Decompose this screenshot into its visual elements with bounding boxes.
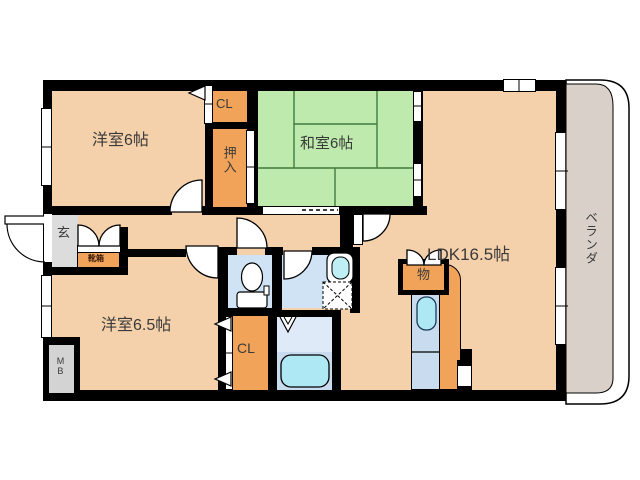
toilet-door <box>237 218 267 248</box>
storage-label-small-storage: 物 <box>417 268 430 282</box>
storage-door-left <box>407 250 424 265</box>
room-label-veranda: ベランダ <box>583 211 596 273</box>
washroom-door <box>284 251 312 279</box>
toilet-flush <box>264 286 269 295</box>
storage-label-closet-top: CL <box>216 97 233 111</box>
storage-label-shoe-cabinet: 靴箱 <box>88 255 104 263</box>
storage-label-oshiire: 押入 <box>222 146 236 196</box>
floor-plan: 洋室6帖 和室6帖 LDK16.5帖 洋室6.5帖 ベランダ 玄 CL 押入 C… <box>0 0 640 480</box>
toilet-bowl <box>242 263 263 291</box>
western6-door <box>170 180 202 212</box>
washing-machine-pan <box>323 282 352 309</box>
storage-label-meter-box: MB <box>55 356 64 388</box>
door-swings <box>78 180 441 279</box>
room-label-western65: 洋室6.5帖 <box>101 318 171 335</box>
ldk-door <box>363 214 390 241</box>
room-label-entrance: 玄 <box>57 226 70 240</box>
storage-label-closet-bottom: CL <box>237 341 255 356</box>
closet-bottom-arrow-1 <box>215 317 231 331</box>
western65-door <box>186 246 218 278</box>
front-door-leaf <box>5 216 45 224</box>
entrance-double-door-right <box>99 225 120 246</box>
room-label-japanese6: 和室6帖 <box>300 136 353 152</box>
bathtub <box>281 355 329 387</box>
sliding-arrows <box>189 86 231 386</box>
kitchen-sink <box>417 297 436 330</box>
window-ticks <box>41 79 568 353</box>
front-door-opening <box>44 214 52 262</box>
toilet-tank <box>237 292 267 308</box>
closet-top-arrow <box>189 86 205 100</box>
floorplan-graphics <box>0 0 640 480</box>
front-door-swing-arc <box>7 224 45 262</box>
washbasin-bowl <box>332 257 349 279</box>
room-label-ldk: LDK16.5帖 <box>427 246 510 264</box>
closet-bottom-arrow-2 <box>215 372 231 386</box>
room-label-western6: 洋室6帖 <box>92 133 149 150</box>
entrance-double-door-left <box>78 225 99 246</box>
